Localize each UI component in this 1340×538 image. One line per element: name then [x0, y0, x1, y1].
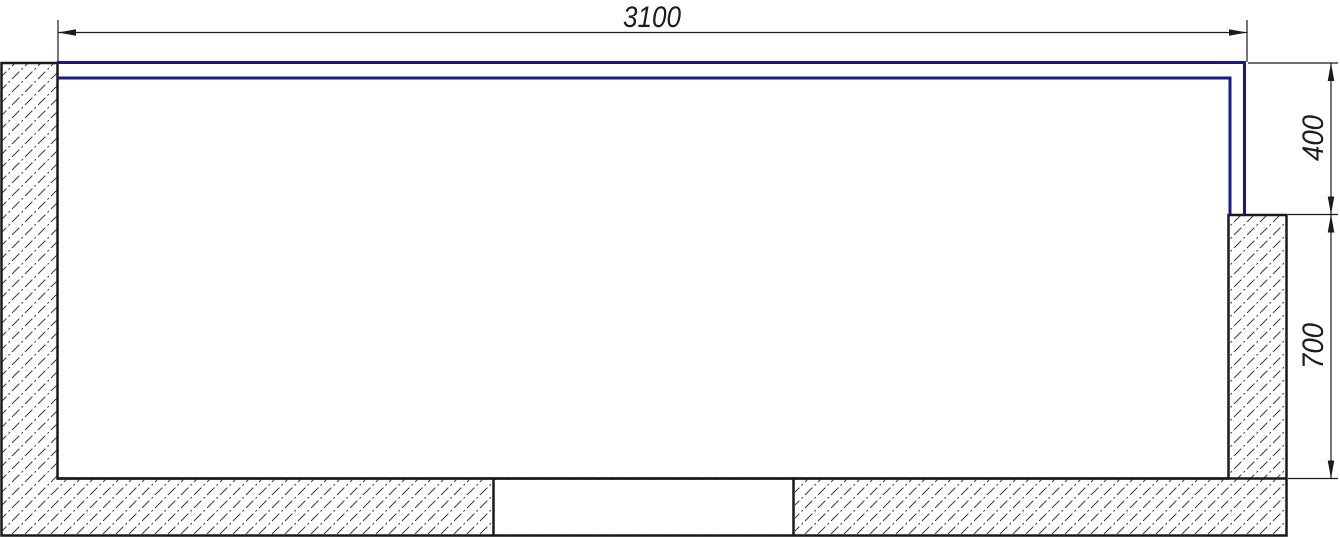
drawing-svg: 3100 400 700 — [0, 0, 1340, 538]
dimension-text-width: 3100 — [623, 1, 681, 34]
technical-drawing-canvas: 3100 400 700 — [0, 0, 1340, 538]
paper-background — [0, 0, 1340, 538]
dimension-text-side-upper: 400 — [1297, 115, 1330, 161]
dimension-text-side-lower: 700 — [1297, 323, 1330, 369]
wall-opening — [492, 480, 795, 534]
